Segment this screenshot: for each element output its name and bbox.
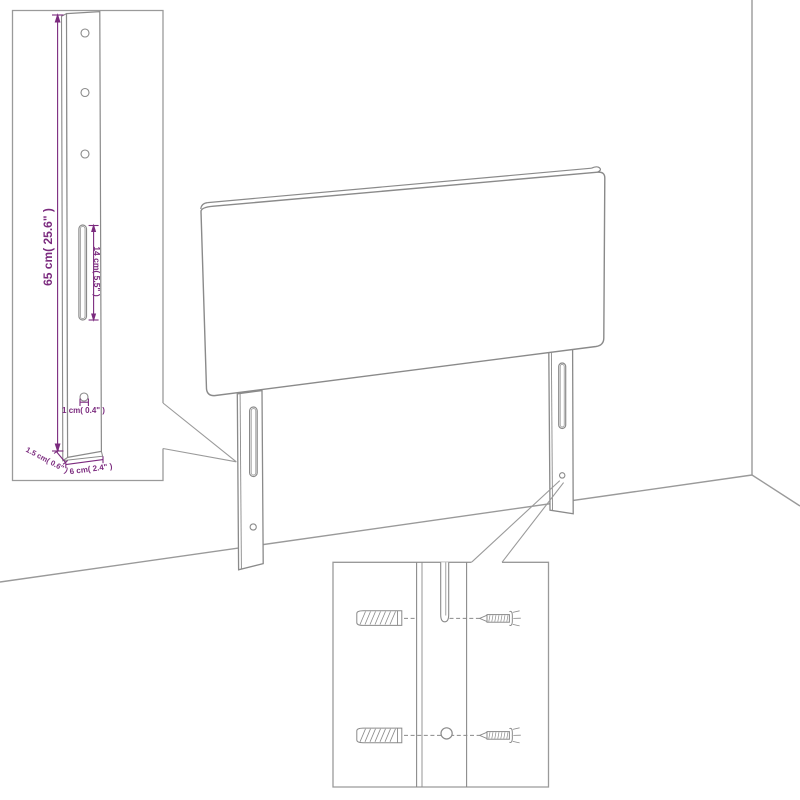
- right-leg-hole: [560, 473, 565, 478]
- leg-hole-top: [81, 29, 89, 37]
- leg-hole-lower: [81, 150, 89, 158]
- assembly-diagram: 65 cm( 25.6" ) 14 cm( 5.5" ) 1 cm( 0.4" …: [0, 0, 800, 800]
- right-leg-slot: [559, 363, 566, 429]
- leg-slot: [79, 225, 87, 320]
- label-leg-width: 6 cm( 2.4" ): [69, 462, 113, 477]
- callout-wedge-left-leg: [163, 403, 236, 462]
- callout-line: [163, 403, 236, 462]
- left-leg: [237, 391, 263, 570]
- floor-line-right: [752, 475, 800, 506]
- callout-line: [502, 483, 564, 563]
- assembly-instruction-page: 65 cm( 25.6" ) 14 cm( 5.5" ) 1 cm( 0.4" …: [0, 0, 800, 800]
- leg-small-hole: [80, 393, 88, 401]
- leg-detail-inset: 65 cm( 25.6" ) 14 cm( 5.5" ) 1 cm( 0.4" …: [13, 11, 164, 481]
- label-slot-length: 14 cm( 5.5" ): [92, 246, 102, 297]
- leg-strip-slot: [441, 562, 449, 622]
- headboard-front-panel: [201, 172, 605, 395]
- wall-plug-top: [357, 611, 402, 626]
- left-leg-hole: [250, 524, 256, 530]
- leg-hole-middle: [81, 89, 89, 97]
- mounting-detail-inset: [333, 562, 549, 787]
- leg-strip-hole: [441, 728, 452, 739]
- right-leg: [549, 349, 573, 514]
- wall-plug-bottom: [357, 728, 402, 743]
- headboard-top-right-curl: [592, 167, 601, 172]
- dim-arrow: [55, 15, 59, 22]
- label-hole-diameter: 1 cm( 0.4" ): [62, 406, 105, 415]
- headboard: [201, 167, 605, 396]
- callout-line: [163, 449, 236, 462]
- leg-detail-drawing: [62, 12, 103, 461]
- callout-line: [472, 481, 560, 563]
- label-leg-height: 65 cm( 25.6" ): [41, 208, 55, 286]
